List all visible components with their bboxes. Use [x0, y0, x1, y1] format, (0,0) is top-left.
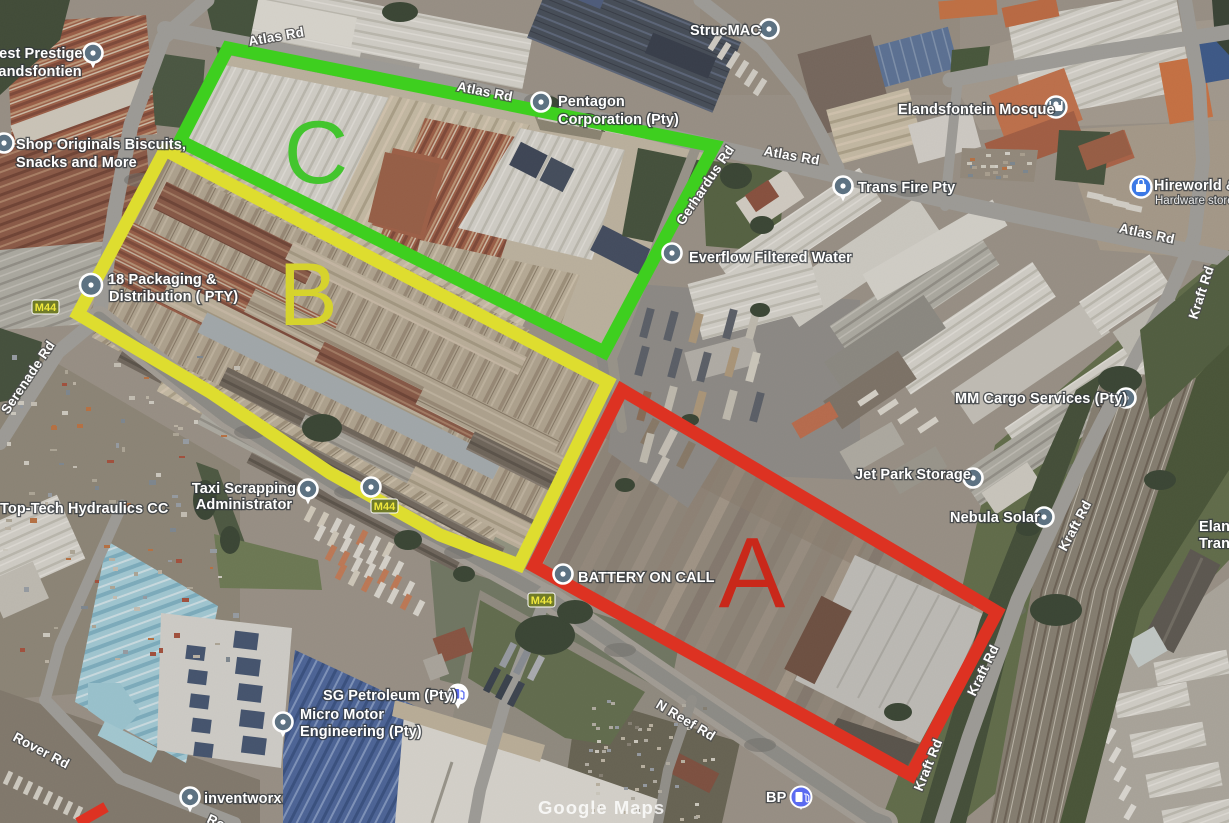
svg-text:Hardware store: Hardware store	[1155, 195, 1229, 207]
svg-text:Taxi Scrapping: Taxi Scrapping	[192, 481, 296, 497]
svg-text:M44: M44	[374, 501, 396, 513]
svg-text:SG Petroleum (Pty): SG Petroleum (Pty)	[323, 688, 457, 704]
svg-text:B: B	[278, 244, 337, 344]
svg-text:rest Prestige: rest Prestige	[0, 46, 83, 62]
svg-text:Top-Tech Hydraulics CC: Top-Tech Hydraulics CC	[0, 501, 169, 517]
svg-text:C: C	[284, 102, 348, 202]
svg-text:Pentagon: Pentagon	[558, 94, 625, 110]
svg-text:Google Maps: Google Maps	[538, 797, 665, 818]
svg-text:BP: BP	[766, 790, 787, 806]
svg-text:Shop Originals Biscuits,: Shop Originals Biscuits,	[16, 137, 186, 153]
svg-text:Micro Motor: Micro Motor	[300, 707, 384, 723]
svg-text:MM Cargo Services (Pty): MM Cargo Services (Pty)	[955, 391, 1127, 407]
svg-text:Engineering (Pty): Engineering (Pty)	[300, 724, 422, 740]
svg-text:Elandsfontein Mosque: Elandsfontein Mosque	[898, 102, 1055, 118]
svg-text:StrucMAC: StrucMAC	[690, 23, 761, 39]
svg-text:18 Packaging &: 18 Packaging &	[108, 272, 217, 288]
svg-text:M44: M44	[531, 595, 553, 607]
svg-text:BATTERY ON CALL: BATTERY ON CALL	[578, 570, 715, 586]
svg-text:inventworx: inventworx	[204, 791, 282, 807]
svg-text:landsfontien: landsfontien	[0, 64, 82, 80]
svg-text:Transp: Transp	[1199, 536, 1229, 552]
svg-text:Distribution ( PTY): Distribution ( PTY)	[109, 289, 238, 305]
svg-text:Snacks and More: Snacks and More	[16, 155, 137, 171]
svg-text:Corporation (Pty): Corporation (Pty)	[558, 112, 679, 128]
svg-text:A: A	[719, 517, 786, 629]
svg-text:Administrator: Administrator	[196, 497, 293, 513]
svg-text:Trans Fire Pty: Trans Fire Pty	[858, 180, 955, 196]
svg-text:Nebula Solar: Nebula Solar	[950, 510, 1040, 526]
svg-text:Jet Park Storage: Jet Park Storage	[855, 467, 971, 483]
svg-text:M44: M44	[35, 302, 57, 314]
svg-text:Hireworld &: Hireworld &	[1154, 178, 1229, 194]
svg-text:Everflow Filtered Water: Everflow Filtered Water	[689, 250, 852, 266]
svg-text:Elands: Elands	[1199, 519, 1229, 535]
